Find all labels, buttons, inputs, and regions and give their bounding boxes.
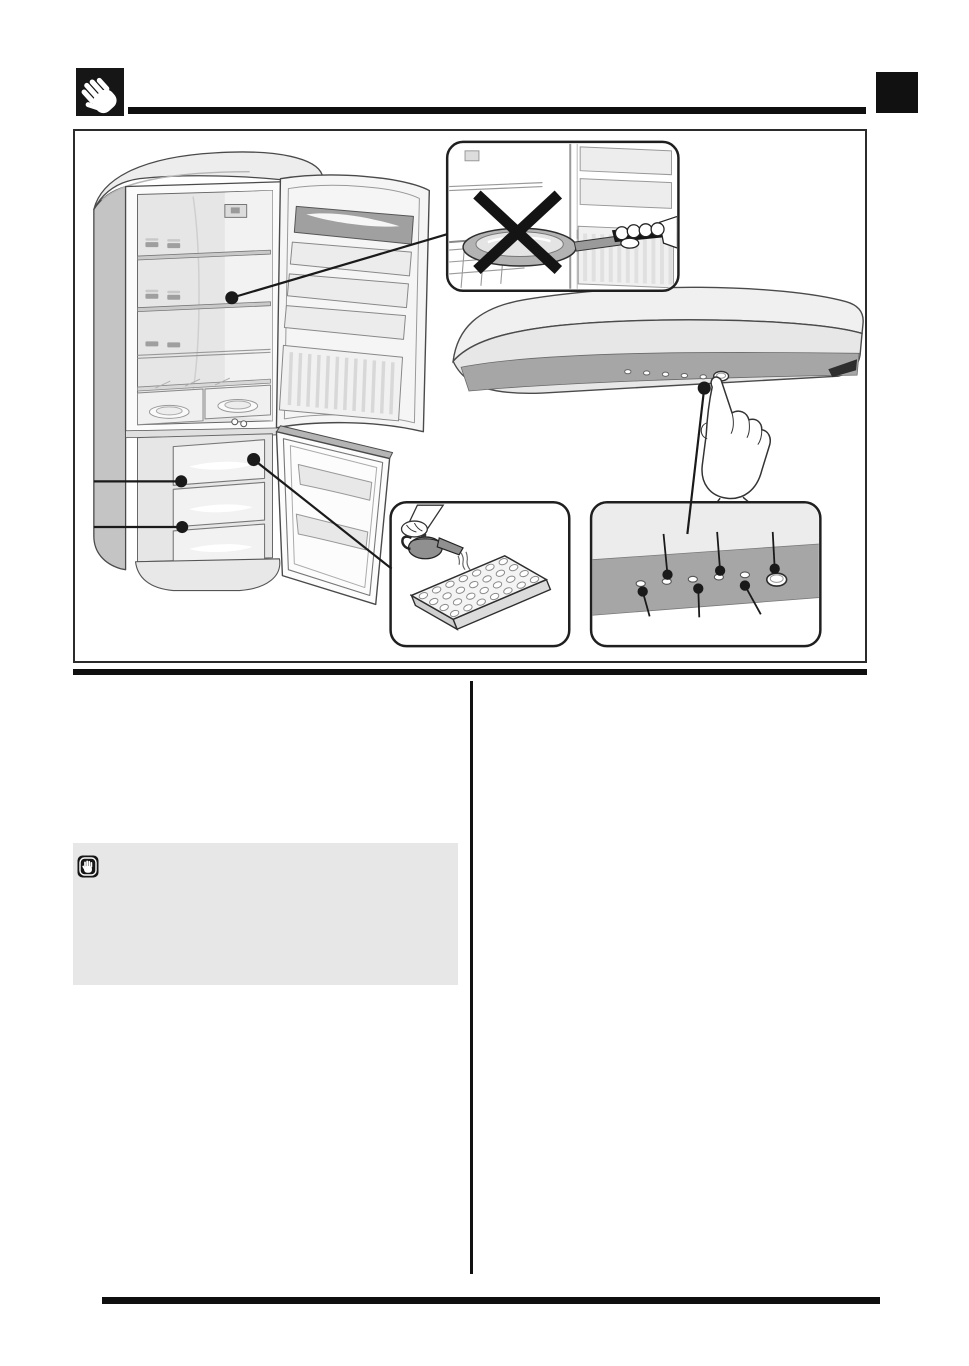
header-rule xyxy=(128,107,866,114)
note-box xyxy=(73,843,458,985)
pressing-hand xyxy=(701,377,770,502)
ice-tray-inset xyxy=(391,502,570,646)
appliance-top-control-strip xyxy=(453,287,863,502)
section-rule xyxy=(73,669,867,675)
column-divider xyxy=(470,681,473,1274)
cabinet-side-panel xyxy=(94,187,126,570)
control-panel-detail-inset xyxy=(591,502,820,646)
stop-hand-icon xyxy=(77,855,99,878)
no-hot-cookware-inset xyxy=(447,142,678,291)
plinth xyxy=(136,559,280,591)
page-corner-marker xyxy=(876,72,918,113)
figure-box xyxy=(73,129,867,663)
figure-illustration xyxy=(75,131,865,661)
stop-hand-icon-svg xyxy=(77,855,99,878)
manual-page xyxy=(0,0,969,1366)
caution-hand-icon-svg xyxy=(76,68,124,116)
footer-rule xyxy=(102,1297,880,1304)
caution-hand-icon xyxy=(76,68,124,116)
fridge-freezer-illustration xyxy=(94,152,429,604)
freezer-door-open xyxy=(276,426,392,605)
fridge-door-open xyxy=(276,175,429,432)
